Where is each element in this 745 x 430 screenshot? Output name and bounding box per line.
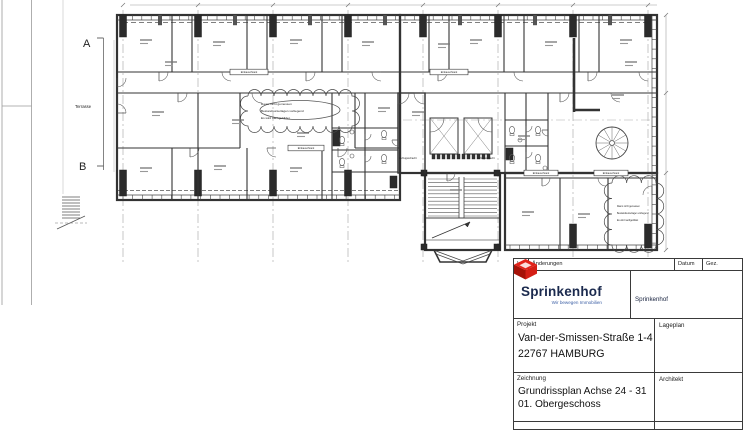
cloud-note-line: Bestandsunterlagen vorliegend	[617, 212, 649, 215]
section-marker-a: A	[83, 38, 91, 50]
project-row: Projekt Van-der-Smissen-Straße 1-4 22767…	[514, 319, 742, 373]
drawing-label: Zeichnung	[517, 375, 654, 382]
company-row: Sprinkenhof Wir bewegen Immobilien Sprin…	[514, 271, 742, 319]
cloud-note-line: Bestandsunterlagen vorliegend	[261, 109, 304, 113]
title-block: Index Änderungen Datum Gez. Sprinkenhof …	[513, 258, 743, 430]
revision-header-row: Index Änderungen Datum Gez.	[514, 259, 742, 271]
drawing-row: Zeichnung Grundrissplan Achse 24 - 31 01…	[514, 373, 742, 422]
elevator-label: Aufzugsschacht	[477, 157, 495, 160]
closet-label: Einbauschrank	[298, 147, 315, 150]
drawing-floor: 01. Obergeschoss	[517, 399, 654, 412]
address-company: Sprinkenhof	[635, 295, 742, 306]
clipped-row	[514, 422, 742, 429]
project-city: 22767 HAMBURG	[517, 347, 654, 363]
section-marker-b: B	[79, 161, 86, 173]
lageplan-label: Lageplan	[659, 322, 742, 329]
cloud-note-line: Raum nicht gemessen	[617, 205, 641, 208]
company-address: Sprinkenhof Burchardstr. 8 20095 HAMBURG…	[631, 271, 742, 318]
drawing-sheet: A B Terrasse Raum nicht gemessen Bestand…	[0, 0, 745, 430]
company-logo: Sprinkenhof Wir bewegen Immobilien	[514, 271, 631, 318]
header-datum: Datum	[675, 259, 703, 270]
closet-label: Einbauschrank	[533, 172, 550, 175]
closet-label: Einbauschrank	[241, 71, 258, 74]
logo-tagline: Wir bewegen Immobilien	[521, 300, 602, 305]
drawing-title: Grundrissplan Achse 24 - 31	[517, 386, 654, 399]
architekt-label: Architekt	[659, 376, 742, 383]
elevator-label: Aufzugsschacht	[399, 157, 417, 160]
project-label: Projekt	[517, 321, 654, 328]
logo-wordmark: Sprinkenhof	[521, 284, 602, 299]
project-address: Van-der-Smissen-Straße 1-4	[517, 331, 654, 347]
header-gez: Gez.	[703, 259, 742, 270]
cloud-note-line: Es wird nachgebildet	[261, 116, 290, 120]
header-aenderungen: Änderungen	[529, 259, 675, 270]
cloud-note-line: Es wird nachgebildet	[617, 219, 639, 222]
terrasse-label: Terrasse	[75, 104, 92, 109]
cloud-note-line: Raum nicht gemessen	[261, 102, 292, 106]
closet-label: Einbauschrank	[441, 71, 458, 74]
closet-label: Einbauschrank	[603, 172, 620, 175]
sprinkenhof-cube-icon	[514, 271, 537, 280]
